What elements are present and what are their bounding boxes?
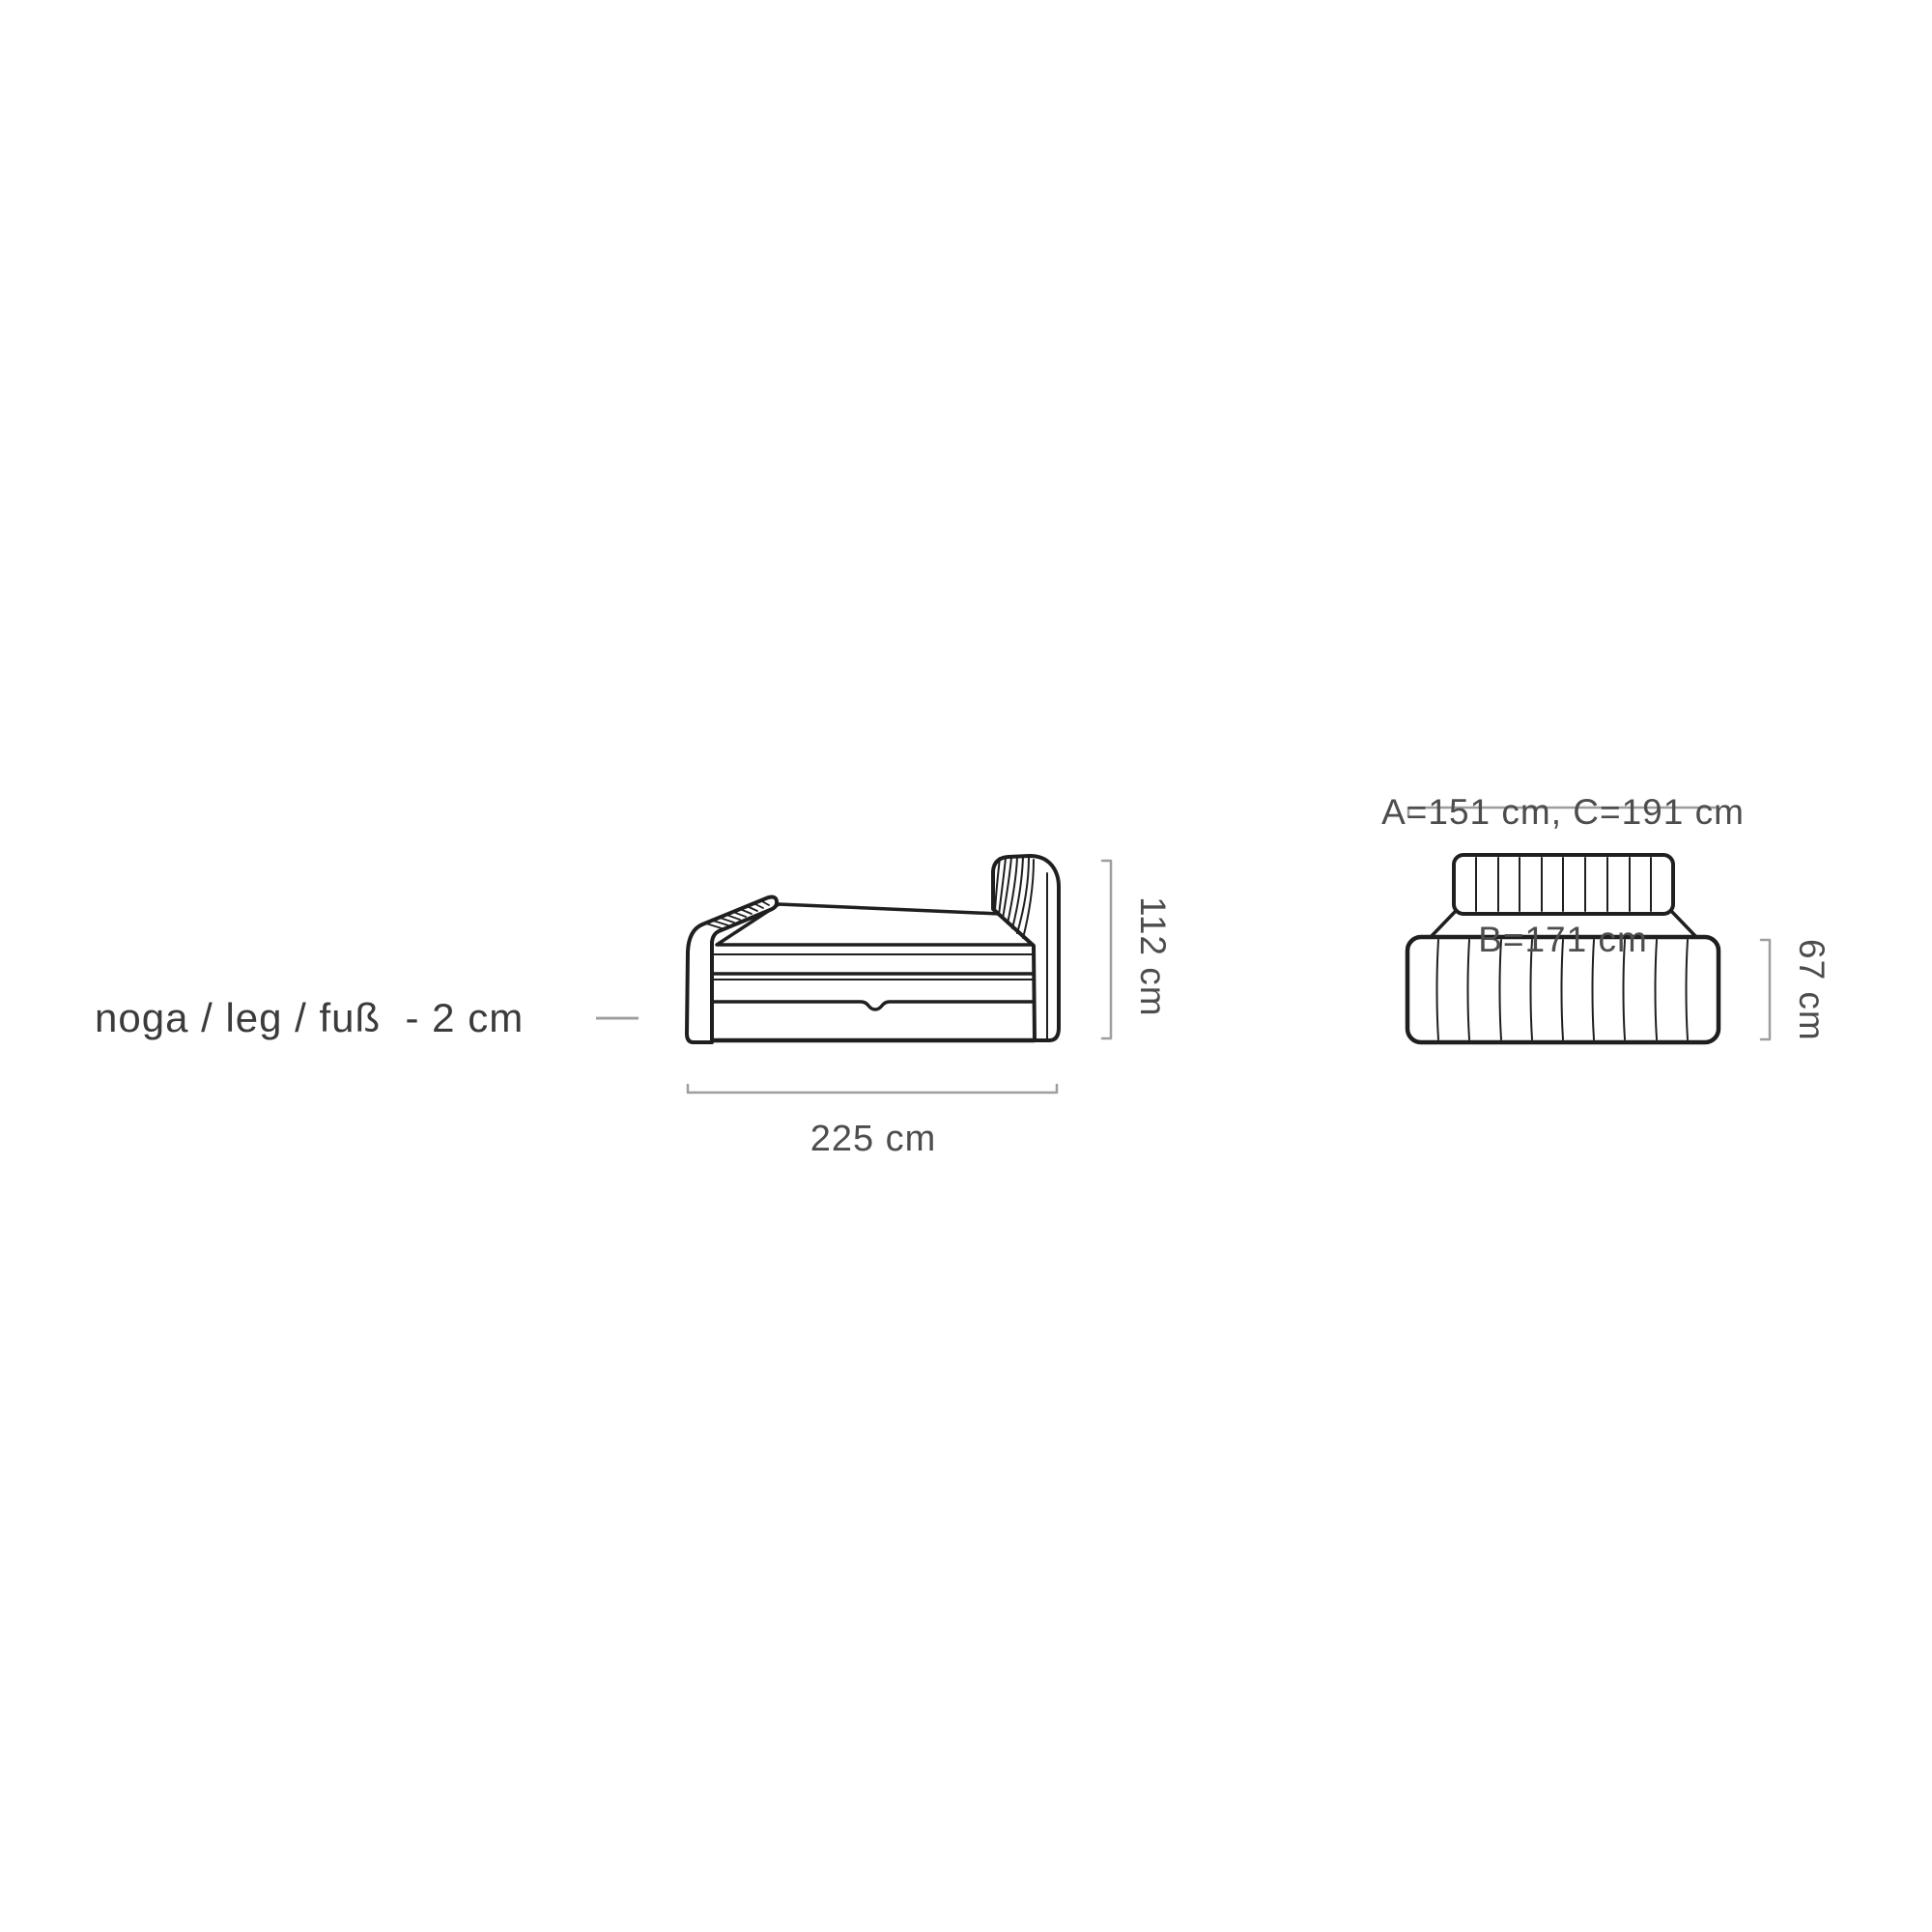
side-drawer-line (711, 1002, 1034, 1009)
bed-side-view-drawing (687, 856, 1059, 1042)
front-width-label-line1: A=151 cm, C=191 cm (1370, 791, 1756, 834)
front-width-labels: A=151 cm, C=191 cm B=171 cm (1370, 706, 1756, 1046)
side-height-label: 112 cm (1132, 896, 1173, 1032)
front-height-label: 67 cm (1791, 939, 1832, 1050)
side-width-label: 225 cm (753, 1119, 994, 1160)
front-height-bracket (1761, 940, 1770, 1039)
leg-pointer-dash: — (596, 991, 639, 1039)
leg-note-label: noga / leg / fuß - 2 cm (95, 995, 524, 1041)
front-width-label-line2: B=171 cm (1370, 919, 1756, 961)
side-height-bracket (1102, 861, 1111, 1038)
side-width-bracket (688, 1085, 1057, 1093)
diagram-page: noga / leg / fuß - 2 cm — A=151 cm, C=19… (0, 0, 1932, 1932)
